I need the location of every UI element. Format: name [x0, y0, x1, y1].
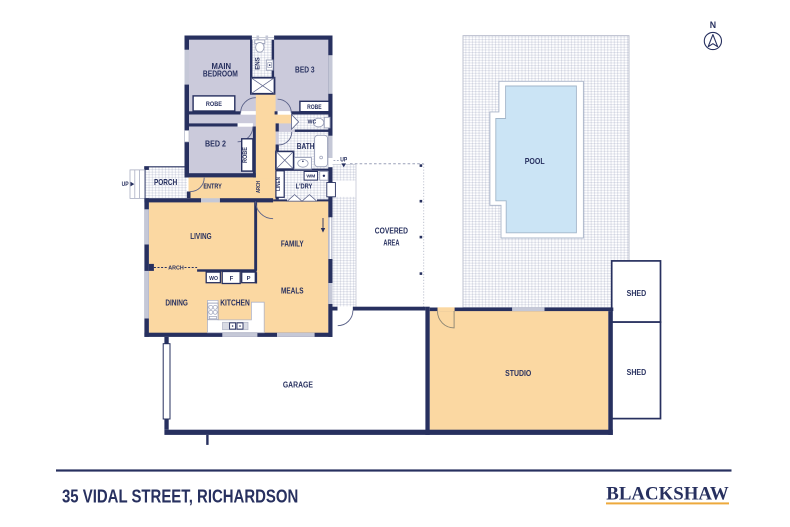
svg-text:ROBE: ROBE: [206, 101, 222, 108]
svg-text:UP: UP: [340, 158, 347, 164]
svg-text:DINING: DINING: [165, 297, 188, 307]
svg-text:KITCHEN: KITCHEN: [220, 298, 250, 308]
svg-text:BATH: BATH: [297, 142, 315, 151]
svg-text:ROBE: ROBE: [242, 147, 249, 163]
svg-text:BEDROOM: BEDROOM: [203, 70, 238, 79]
svg-text:SHED: SHED: [627, 289, 647, 298]
svg-text:ENTRY: ENTRY: [203, 182, 221, 191]
svg-text:35 VIDAL STREET, RICHARDSON: 35 VIDAL STREET, RICHARDSON: [62, 487, 298, 507]
svg-text:STUDIO: STUDIO: [505, 368, 531, 378]
svg-text:L'DRY: L'DRY: [296, 181, 313, 190]
svg-text:POOL: POOL: [525, 156, 545, 166]
svg-text:ARCH: ARCH: [168, 266, 184, 272]
svg-text:AREA: AREA: [383, 238, 399, 248]
svg-text:P: P: [247, 276, 251, 282]
svg-text:ROBE: ROBE: [307, 104, 322, 111]
svg-text:UP: UP: [122, 181, 129, 188]
svg-text:LIVING: LIVING: [190, 231, 211, 241]
svg-text:COVERED: COVERED: [375, 226, 408, 236]
svg-text:PORCH: PORCH: [154, 177, 177, 187]
svg-text:WM: WM: [306, 174, 315, 180]
svg-text:FAMILY: FAMILY: [281, 238, 304, 248]
svg-text:MEALS: MEALS: [281, 285, 304, 295]
svg-text:BED 2: BED 2: [205, 139, 226, 148]
svg-text:LINEN: LINEN: [276, 177, 282, 191]
svg-text:BLACKSHAW: BLACKSHAW: [606, 484, 729, 505]
svg-text:F: F: [230, 276, 234, 282]
svg-text:BED 3: BED 3: [295, 66, 315, 75]
svg-text:ARCH: ARCH: [256, 181, 262, 193]
svg-text:WC: WC: [308, 119, 317, 125]
svg-text:N: N: [710, 20, 716, 30]
svg-text:ENS: ENS: [254, 57, 261, 70]
svg-text:GARAGE: GARAGE: [283, 380, 313, 390]
svg-text:WO: WO: [209, 276, 218, 282]
svg-text:SHED: SHED: [627, 368, 647, 377]
